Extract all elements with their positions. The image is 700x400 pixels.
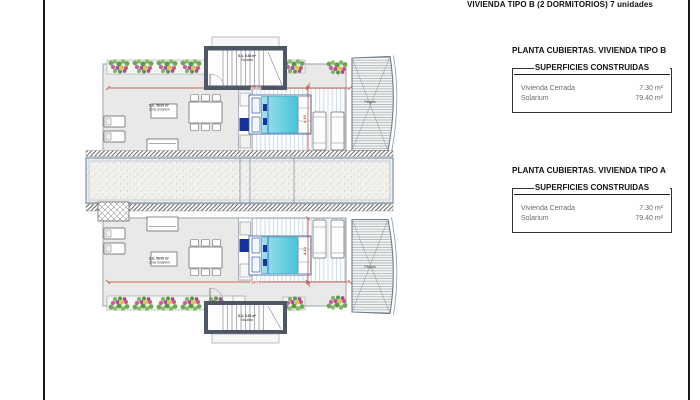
- stair-label-top-line2: Escalera: [241, 58, 254, 62]
- unit-bottom: [103, 217, 397, 315]
- table-row: Solarium 79.40 m²: [521, 214, 663, 224]
- surface-table: SUPERFICIES CONSTRUIDAS Vivienda Cerrada…: [512, 68, 672, 113]
- drawing-sheet: VIVIENDA TIPO B (2 DORMITORIOS) 7 unidad…: [0, 0, 700, 400]
- panel-vivienda-tipo-a: PLANTA CUBIERTAS. VIVIENDA TIPO A SUPERF…: [512, 166, 672, 233]
- panel-subtitle: SUPERFICIES CONSTRUIDAS: [514, 63, 670, 75]
- dim-width-label-bottom: 19.70: [251, 280, 262, 285]
- panel-title: PLANTA CUBIERTAS. VIVIENDA TIPO B: [512, 46, 672, 55]
- row-label: Vivienda Cerrada: [521, 204, 575, 214]
- row-value: 79.40 m²: [635, 214, 663, 224]
- wall-hatch-upper: [86, 151, 393, 157]
- row-label: Solarium: [521, 94, 549, 104]
- speckled-band: [86, 158, 393, 203]
- panel-subtitle: SUPERFICIES CONSTRUIDAS: [514, 183, 670, 195]
- dim-height-label-top: 4.10: [302, 114, 307, 123]
- central-wall-band: [86, 151, 393, 222]
- panel-title: PLANTA CUBIERTAS. VIVIENDA TIPO A: [512, 166, 672, 175]
- area-label-top-line2: Zona Solarium: [149, 108, 170, 112]
- table-row: Vivienda Cerrada 7.30 m²: [521, 84, 663, 94]
- dim-width-label-top: 19.70: [251, 86, 262, 91]
- row-value: 7.30 m²: [639, 204, 663, 214]
- stone-wall-block: [98, 202, 129, 221]
- row-value: 79.40 m²: [635, 94, 663, 104]
- panel-vivienda-tipo-b: PLANTA CUBIERTAS. VIVIENDA TIPO B SUPERF…: [512, 46, 672, 113]
- row-label: Solarium: [521, 214, 549, 224]
- stair-label-bottom-line2: Escalera: [241, 318, 254, 322]
- pergola-label-bottom: Pérgola: [365, 265, 376, 269]
- double-bed: [249, 95, 311, 134]
- dim-height-label-bottom: 4.10: [302, 246, 307, 255]
- wall-hatch-lower: [86, 204, 393, 211]
- staircase-top: [204, 37, 287, 90]
- dining-table: [189, 95, 222, 131]
- table-row: Solarium 79.40 m²: [521, 94, 663, 104]
- pergola: [352, 56, 397, 153]
- area-label-bottom-line2: Zona Solarium: [149, 261, 170, 265]
- row-value: 7.30 m²: [639, 84, 663, 94]
- row-label: Vivienda Cerrada: [521, 84, 575, 94]
- pergola-label-top: Pérgola: [365, 100, 376, 104]
- surface-table: SUPERFICIES CONSTRUIDAS Vivienda Cerrada…: [512, 188, 672, 233]
- table-row: Vivienda Cerrada 7.30 m²: [521, 204, 663, 214]
